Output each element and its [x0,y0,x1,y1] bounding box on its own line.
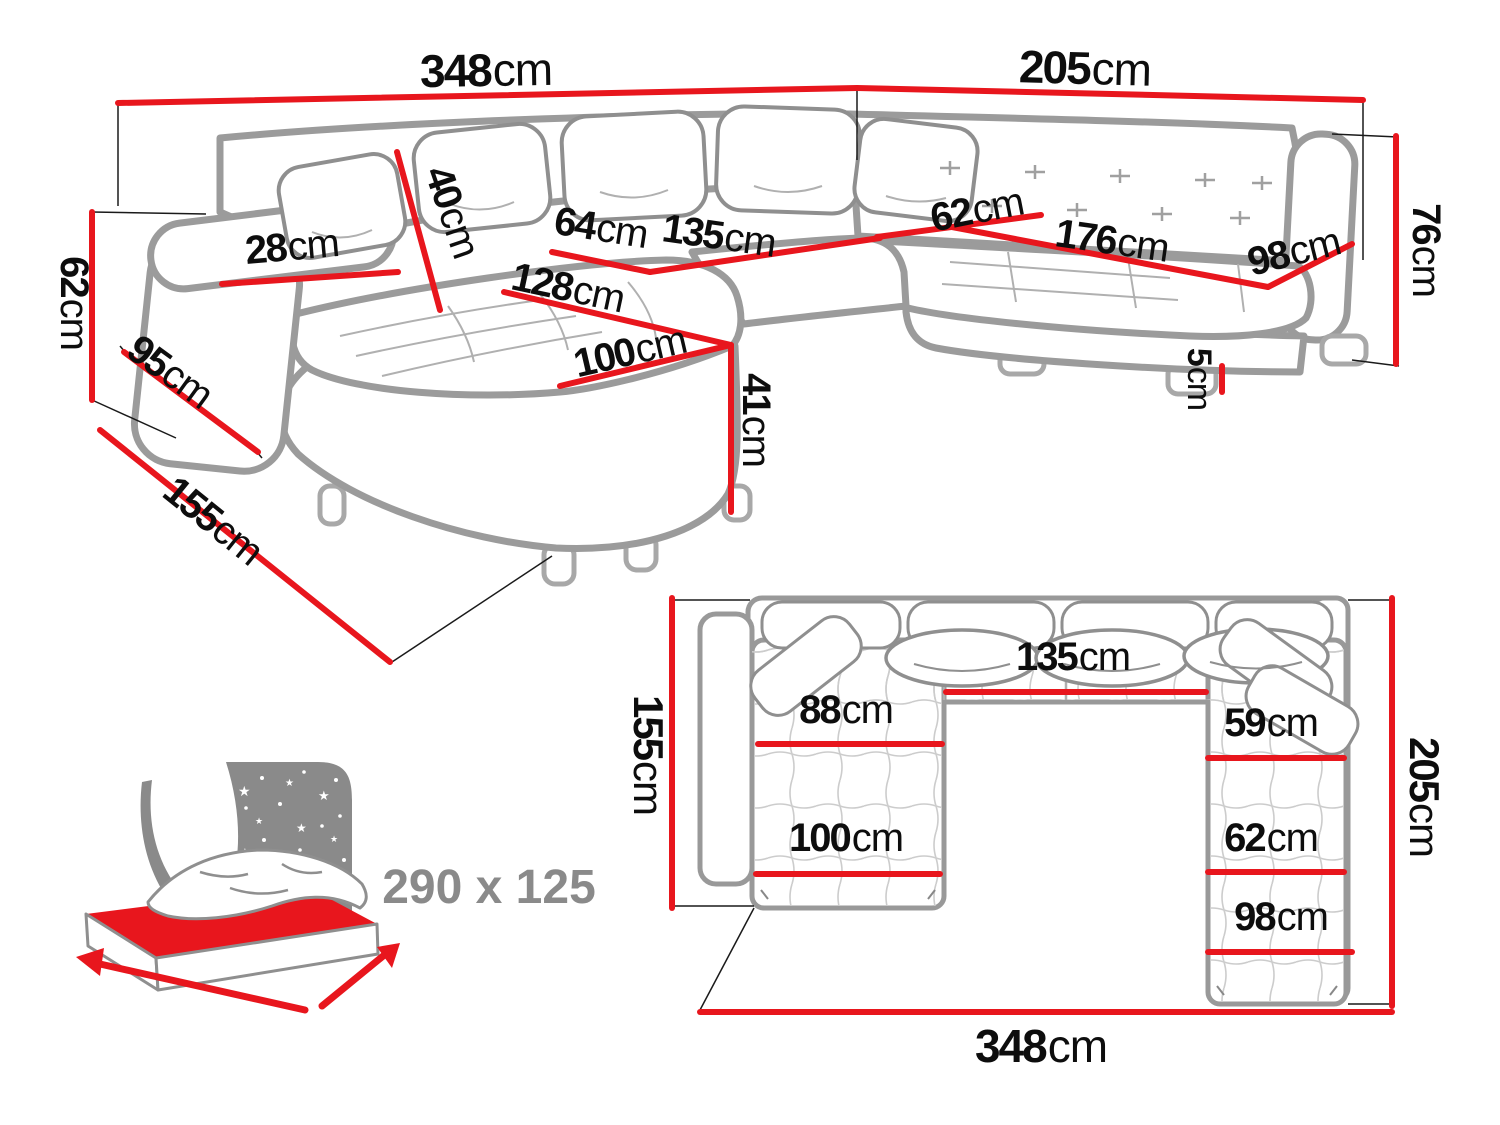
dim-chaise-length: 128cm [508,257,628,320]
tv-dim-chaise-upper-width: 88cm [799,690,893,730]
dim-seat-cushion-width: 64cm [552,201,651,255]
dim-right-seat-length: 176cm [1053,213,1172,268]
dim-chaise-depth: 155cm [156,470,270,573]
dim-right-arm-span: 98cm [1244,221,1345,283]
tv-dim-right-lower-width: 62cm [1224,818,1318,858]
dim-seat-height: 41cm [736,373,776,467]
dim-back-cushion-height: 40cm [418,161,486,263]
dim-left-side-height: 62cm [54,256,94,350]
dim-left-arm-depth: 95cm [120,328,219,416]
sofa-dimensions-diagram: ★ ★ ★ ★ ★ ★ ★ ★ ★ ★ ★ [0,0,1500,1125]
dim-chaise-width: 100cm [570,320,690,385]
tv-dim-right-upper-width: 59cm [1224,703,1318,743]
dim-right-seat-depth: 62cm [927,181,1027,238]
tv-dim-total-width: 348cm [975,1023,1107,1069]
labels-layer: 348cm 205cm 40cm 28cm 64cm 135cm 62cm 17… [0,0,1500,1125]
tv-dim-chaise-width: 100cm [789,818,903,858]
dim-armrest-width: 28cm [244,223,341,271]
sleeping-size-label: 290 x 125 [382,864,596,912]
dim-leg-height: 5cm [1182,348,1216,410]
dim-right-back-height: 76cm [1406,203,1446,297]
dim-perspective-right-depth: 205cm [1018,43,1151,92]
dim-perspective-total-width: 348cm [420,46,553,94]
tv-dim-center-seat-width: 135cm [1016,637,1130,677]
tv-dim-right-section-width: 98cm [1234,897,1328,937]
tv-dim-right-depth: 205cm [1403,737,1445,857]
dim-center-seat-width: 135cm [660,208,779,263]
tv-dim-left-depth: 155cm [627,695,669,815]
